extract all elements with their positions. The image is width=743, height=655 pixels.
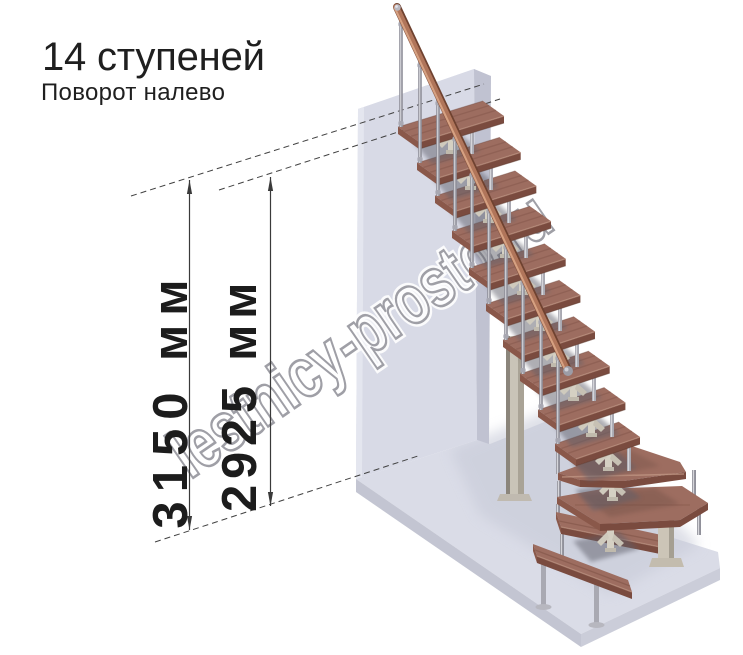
- svg-text:3150 мм: 3150 мм: [144, 270, 198, 528]
- svg-text:2925 мм: 2925 мм: [213, 277, 267, 512]
